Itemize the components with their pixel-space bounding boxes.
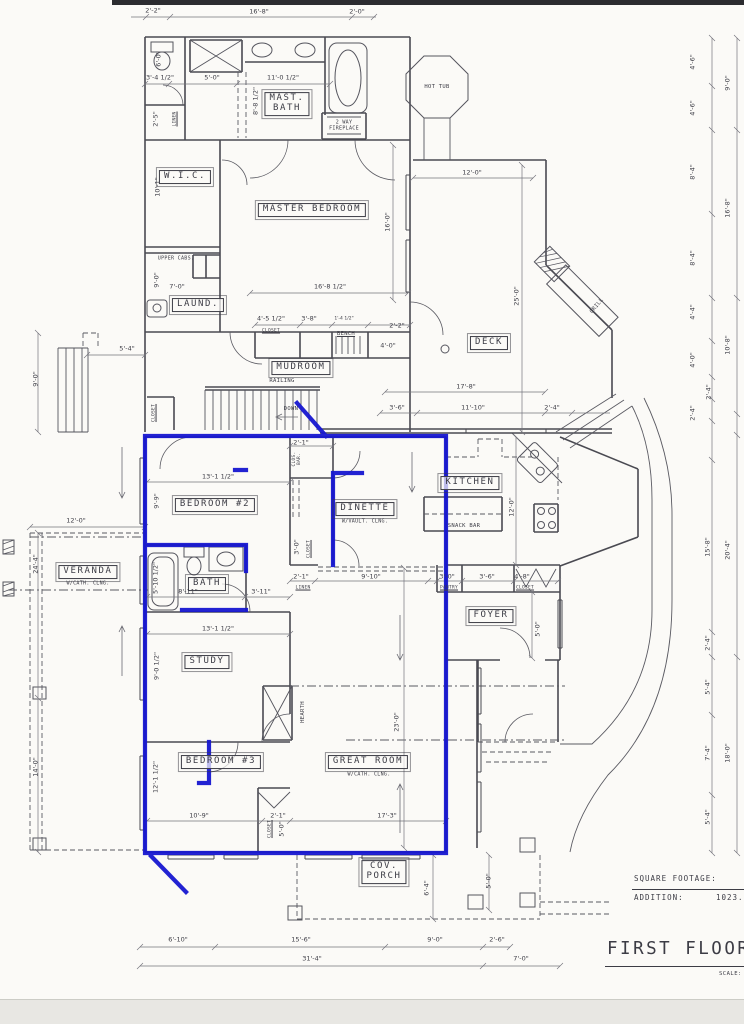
room-label-laundry: LAUND. [172, 298, 224, 312]
dim-label: 5'-4" [704, 679, 711, 694]
porch-post [520, 893, 535, 907]
room-label-bedroom-2: BEDROOM #2 [175, 498, 255, 512]
dim-label: 4'-4" [689, 304, 696, 319]
room-label-veranda: VERANDA [58, 565, 117, 579]
room-label-mast-bath: MAST. BATH [264, 92, 309, 116]
feat-label: 2 WAY FIREPLACE [329, 121, 359, 132]
dim-label: 9'-10" [361, 573, 381, 580]
feat-label: CLOSET [269, 820, 274, 838]
feat-label: W/CATH. CLNG. [66, 581, 109, 587]
dim-label: 2'-1" [270, 812, 285, 819]
dashed-lines [8, 72, 612, 919]
dim-label: 17'-3" [377, 812, 397, 819]
arrows [119, 414, 415, 833]
dim-label: 2'-6" [489, 936, 504, 943]
dim-label: 3'-4 1/2" [146, 74, 174, 81]
dim-label: 2'-1" [293, 573, 308, 580]
dim-label: 16'-8 1/2" [314, 283, 346, 290]
sink [295, 43, 315, 57]
dim-label: 5'-0" [278, 821, 285, 836]
dim-label: 8'-4" [689, 250, 696, 265]
porch-post [468, 895, 483, 909]
dim-label: 17'-8" [456, 383, 476, 390]
dim-label: 15'-6" [291, 936, 311, 943]
dim-label: 2'-4" [689, 405, 696, 420]
deck-post [441, 345, 449, 353]
cooktop-burner [538, 508, 545, 515]
feat-label: PANTRY [440, 587, 458, 592]
dimension-lines [27, 14, 740, 969]
dim-label: 2'-2" [389, 322, 404, 329]
feat-label: HEARTH [300, 701, 306, 723]
cooktop-burner [549, 508, 556, 515]
addition-label: ADDITION: [634, 893, 684, 902]
dim-label: 8'-4" [689, 164, 696, 179]
dim-label: 3'-0" [293, 539, 300, 554]
room-label-kitchen: KITCHEN [440, 476, 499, 490]
dim-label: 9'-0" [724, 75, 731, 90]
dim-label: 3'-6" [479, 573, 494, 580]
feat-label: CLOS. BAR. [293, 451, 303, 466]
cooktop-burner [538, 522, 545, 529]
dim-label: 8'-11" [178, 588, 198, 595]
sink [217, 552, 235, 566]
veranda-post [33, 687, 46, 699]
room-label-dinette: DINETTE [335, 502, 394, 516]
cooktop-burner [549, 522, 556, 529]
dim-label: 9'-0" [427, 936, 442, 943]
dim-label: 2'-4" [704, 635, 711, 650]
dim-label: 7'-4" [704, 745, 711, 760]
feat-label: SNACK BAR [448, 523, 481, 529]
feat-label: LINEN [295, 587, 310, 592]
dim-label: 6'-10" [168, 936, 188, 943]
dim-label: 2'-0" [349, 8, 364, 15]
sheet-title-rule [605, 966, 744, 967]
dim-label: 6'-4" [423, 880, 430, 895]
feat-label: UPPER CABS. [158, 256, 194, 262]
dim-label: 4'-0" [380, 342, 395, 349]
room-label-master-bedroom: MASTER BEDROOM [258, 203, 366, 217]
detail-lines [58, 40, 562, 808]
dim-label: 24'-4" [32, 554, 39, 574]
room-label-foyer: FOYER [468, 609, 513, 623]
dim-label: 10'-1" [154, 177, 161, 197]
dim-label: 10'-9" [189, 812, 209, 819]
toilet [187, 557, 201, 575]
dim-label: 4'-0" [689, 352, 696, 367]
room-label-great-room: GREAT ROOM [328, 755, 408, 769]
dim-label: 12'-0" [508, 497, 515, 517]
dim-label: 2'-4" [705, 384, 712, 399]
square-footage-label: SQUARE FOOTAGE: [634, 874, 717, 883]
feat-label: BENCH [337, 331, 355, 337]
feat-label: CLOSET [516, 587, 534, 592]
dim-label: 13'-1 1/2" [202, 625, 234, 632]
feat-label: W/VAULT. CLNG. [342, 519, 388, 525]
feat-label: W/CATH. CLNG. [347, 772, 390, 778]
dim-label: 9'-0 1/2" [153, 652, 160, 680]
dim-label: 12'-0" [66, 517, 86, 524]
dim-label: 1'-4 1/2" [334, 318, 353, 323]
feat-label: CLOSET [262, 330, 280, 335]
walkway-curves [556, 394, 672, 852]
room-label-mudroom: MUDROOM [271, 361, 330, 375]
dim-label: 14'-0" [32, 757, 39, 777]
dim-label: 5'-0" [485, 873, 492, 888]
room-label-deck: DECK [470, 336, 508, 350]
feat-label: CLOSET [308, 540, 313, 558]
dim-label: 9'-0" [153, 272, 160, 287]
dim-label: 3'-6" [389, 404, 404, 411]
dim-label: 6'-0" [155, 51, 162, 66]
scan-edge-bottom [0, 999, 744, 1024]
dim-label: 2'-4" [544, 404, 559, 411]
feat-label: CLOSET [153, 404, 158, 422]
feat-label: HOT TUB [424, 84, 449, 90]
dim-label: 16'-0" [384, 212, 391, 232]
dim-label: 4'-5 1/2" [257, 315, 285, 322]
dim-label: 3'-11" [251, 588, 271, 595]
dim-label: 2'-1" [293, 439, 308, 446]
feat-label: RAILING [269, 378, 294, 384]
dim-label: 5'-0" [534, 621, 541, 636]
laundry-sink [147, 300, 167, 317]
addition-value: 1023. [716, 893, 744, 902]
kitchen-corner-sink [516, 441, 558, 483]
room-label-cov-porch: COV. PORCH [361, 860, 406, 884]
dim-label: 5'-0" [204, 74, 219, 81]
dim-label: 20'-4" [724, 540, 731, 560]
toilet-tank [184, 547, 204, 557]
dim-label: 5'-4" [119, 345, 134, 352]
sheet-title: FIRST FLOOR F [607, 939, 744, 959]
scan-edge-top [112, 0, 744, 5]
dim-label: 4'-6" [689, 100, 696, 115]
dim-label: 10'-8" [724, 335, 731, 355]
vanity [209, 547, 243, 571]
dim-label: 31'-4" [302, 955, 322, 962]
room-label-bedroom-3: BEDROOM #3 [181, 755, 261, 769]
feat-label: LINEN [174, 111, 179, 126]
dim-label: 9'-9" [153, 493, 160, 508]
title-block-rule [632, 889, 744, 890]
dim-label: 25'-0" [513, 286, 520, 306]
dim-label: 3'-0" [439, 573, 454, 580]
sink [252, 43, 272, 57]
dim-label: 9'-0" [32, 371, 39, 386]
dim-label: 12'-1 1/2" [152, 761, 159, 793]
dim-label: 7'-0" [169, 283, 184, 290]
dim-label: 16'-8" [249, 8, 269, 15]
dim-label: 4'-6" [689, 54, 696, 69]
dim-label: 13'-1 1/2" [202, 473, 234, 480]
dim-label: 15'-8" [704, 537, 711, 557]
dim-label: 2'-5" [152, 111, 159, 126]
scale-label: SCALE: [719, 971, 742, 977]
porch-post [288, 906, 302, 920]
dim-label: 5'-10 1/2" [152, 562, 159, 594]
dim-label: 4'-8" [514, 573, 529, 580]
dim-label: 18'-0" [724, 743, 731, 763]
veranda-post [33, 838, 46, 850]
porch-post [520, 838, 535, 852]
dim-label: 11'-0 1/2" [267, 74, 299, 81]
dim-label: 12'-0" [462, 169, 482, 176]
room-label-wic: W.I.C. [159, 170, 211, 184]
dim-label: 5'-4" [704, 809, 711, 824]
dim-label: 23'-0" [393, 712, 400, 732]
dim-label: 16'-8" [724, 198, 731, 218]
dim-label: 11'-10" [461, 404, 485, 411]
feat-label: DOWN [284, 406, 298, 412]
fixtures [3, 42, 618, 920]
dim-label: 2'-2" [145, 7, 160, 14]
dim-label: 7'-0" [513, 955, 528, 962]
dim-label: 3'-8" [301, 315, 316, 322]
room-label-study: STUDY [184, 655, 229, 669]
floor-plan-page: MAST. BATHW.I.C.MASTER BEDROOMLAUND.MUDR… [0, 0, 744, 1024]
dim-label: 8'-8 1/2" [252, 87, 259, 115]
